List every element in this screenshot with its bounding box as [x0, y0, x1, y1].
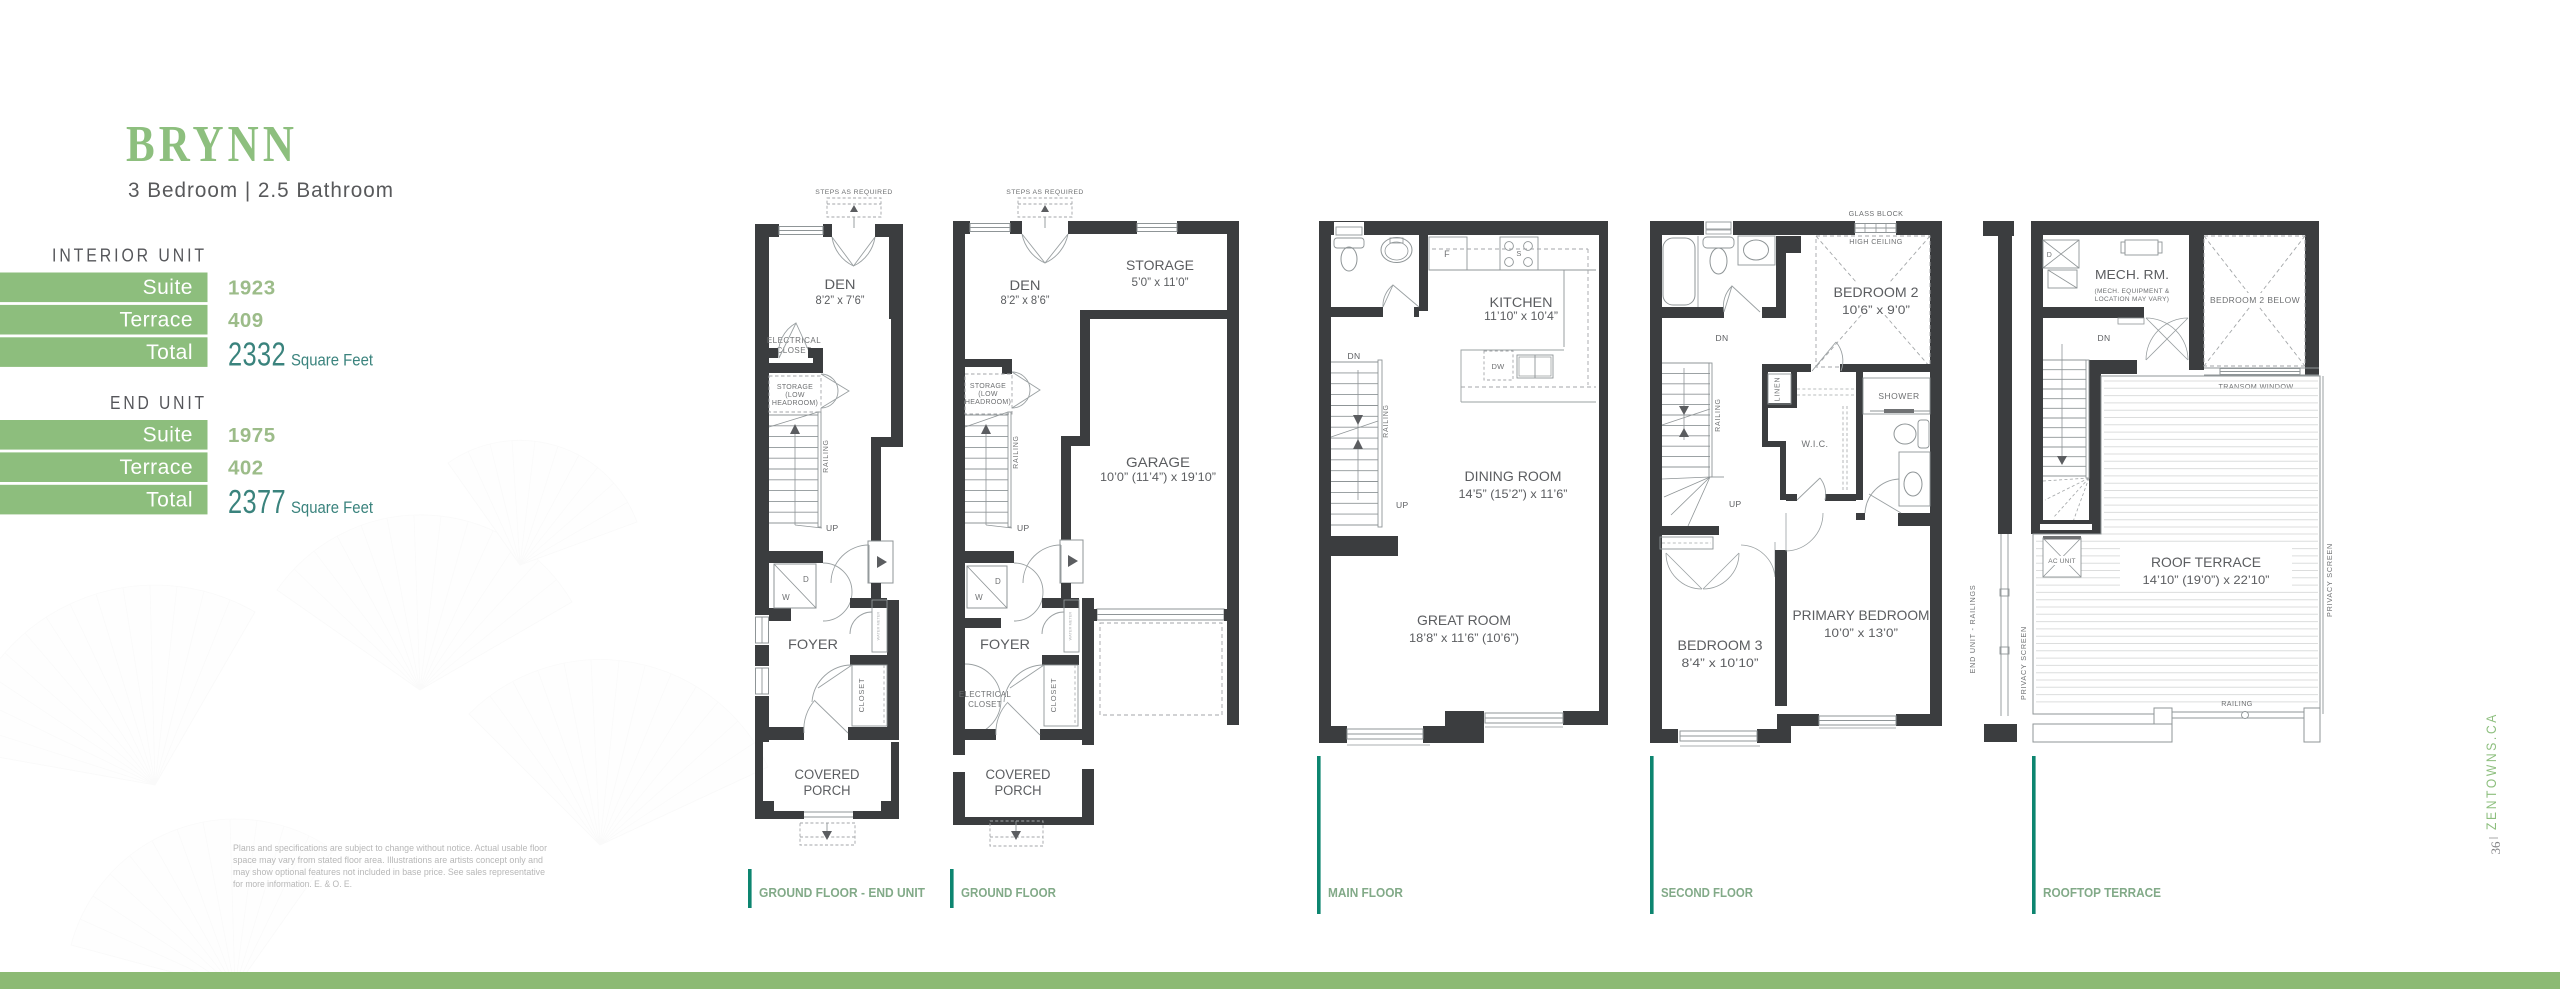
svg-text:END UNIT - RAILINGS: END UNIT - RAILINGS	[1968, 585, 1977, 674]
svg-text:STEPS AS REQUIRED: STEPS AS REQUIRED	[1006, 189, 1083, 196]
svg-text:DW: DW	[1491, 362, 1505, 371]
svg-text:BRYNN: BRYNN	[126, 116, 298, 173]
svg-text:GROUND FLOOR - END UNIT: GROUND FLOOR - END UNIT	[759, 886, 925, 900]
svg-text:RAILING: RAILING	[1013, 435, 1020, 469]
svg-text:DEN: DEN	[825, 277, 856, 292]
svg-text:CLOSET: CLOSET	[857, 678, 866, 713]
svg-text:F: F	[1444, 249, 1450, 259]
svg-text:DEN: DEN	[1010, 278, 1041, 293]
svg-text:Square Feet: Square Feet	[291, 499, 373, 517]
svg-text:RAILING: RAILING	[1383, 404, 1390, 438]
svg-text:8’2” x 7’6”: 8’2” x 7’6”	[816, 293, 865, 307]
svg-text:UP: UP	[1396, 500, 1409, 510]
svg-text:Terrace: Terrace	[119, 456, 193, 479]
svg-text:CLOSET: CLOSET	[1049, 678, 1058, 713]
svg-text:3 Bedroom | 2.5 Bathroom: 3 Bedroom | 2.5 Bathroom	[128, 179, 394, 202]
svg-text:LINEN: LINEN	[1775, 377, 1782, 402]
svg-text:WATER METER: WATER METER	[877, 611, 881, 640]
svg-text:D: D	[995, 577, 1001, 586]
svg-text:11’10” x 10’4”: 11’10” x 10’4”	[1484, 309, 1558, 323]
svg-text:for more information. E. & O.: for more information. E. & O. E.	[233, 879, 352, 889]
svg-text:TRANSOM WINDOW: TRANSOM WINDOW	[2218, 382, 2293, 391]
svg-text:may show optional features not: may show optional features not included …	[233, 867, 545, 877]
svg-text:DN: DN	[1347, 351, 1360, 361]
svg-text:DN: DN	[2097, 333, 2110, 343]
svg-text:402: 402	[228, 456, 264, 479]
svg-text:Terrace: Terrace	[119, 309, 193, 332]
svg-text:ELECTRICAL: ELECTRICAL	[767, 336, 821, 345]
svg-text:S: S	[1516, 249, 1521, 258]
svg-text:36: 36	[2488, 841, 2503, 855]
svg-text:MAIN FLOOR: MAIN FLOOR	[1328, 886, 1403, 900]
svg-text:8’2” x 8’6”: 8’2” x 8’6”	[1001, 293, 1050, 307]
svg-text:CLOSET: CLOSET	[776, 346, 811, 355]
svg-text:D: D	[803, 575, 809, 584]
svg-text:1923: 1923	[228, 277, 276, 300]
svg-text:14’10” (19’0”) x 22’10”: 14’10” (19’0”) x 22’10”	[2143, 573, 2270, 587]
svg-text:W: W	[782, 593, 790, 602]
svg-text:WATER METER: WATER METER	[1069, 611, 1073, 640]
svg-text:CLOSET: CLOSET	[968, 700, 1002, 709]
svg-text:DINING ROOM: DINING ROOM	[1465, 469, 1562, 484]
svg-text:HIGH CEILING: HIGH CEILING	[1849, 237, 1903, 246]
svg-text:STORAGE: STORAGE	[970, 383, 1006, 390]
svg-text:Plans and specifications are s: Plans and specifications are subject to …	[233, 843, 547, 853]
svg-text:D: D	[2047, 252, 2054, 259]
svg-text:(LOW: (LOW	[785, 392, 805, 399]
svg-text:UP: UP	[1729, 499, 1742, 509]
svg-text:BEDROOM 3: BEDROOM 3	[1678, 638, 1763, 653]
svg-text:(LOW: (LOW	[978, 391, 998, 398]
svg-text:GROUND FLOOR: GROUND FLOOR	[961, 886, 1056, 900]
svg-text:UP: UP	[826, 523, 839, 533]
svg-text:2332: 2332	[228, 337, 286, 374]
svg-text:INTERIOR UNIT: INTERIOR UNIT	[52, 245, 207, 266]
svg-text:GARAGE: GARAGE	[1126, 455, 1190, 470]
svg-text:KITCHEN: KITCHEN	[1490, 295, 1553, 310]
svg-text:END UNIT: END UNIT	[110, 392, 207, 413]
svg-text:HEADROOM): HEADROOM)	[772, 400, 818, 407]
svg-text:1975: 1975	[228, 424, 276, 447]
svg-text:UP: UP	[1017, 523, 1030, 533]
svg-text:14’5” (15’2”) x 11’6”: 14’5” (15’2”) x 11’6”	[1459, 487, 1568, 501]
svg-text:PRIVACY SCREEN: PRIVACY SCREEN	[2019, 626, 2028, 700]
svg-text:RAILING: RAILING	[823, 439, 830, 473]
svg-text:RAILING: RAILING	[1715, 398, 1722, 432]
svg-text:Total: Total	[146, 488, 193, 511]
svg-text:5’0” x 11’0”: 5’0” x 11’0”	[1132, 275, 1189, 289]
svg-text:8’4” x 10’10”: 8’4” x 10’10”	[1682, 656, 1759, 670]
svg-text:SHOWER: SHOWER	[1878, 391, 1919, 401]
svg-text:BEDROOM 2 BELOW: BEDROOM 2 BELOW	[2210, 295, 2300, 305]
svg-text:W: W	[975, 593, 983, 602]
svg-text:AC UNIT: AC UNIT	[2048, 558, 2075, 565]
svg-text:STEPS AS REQUIRED: STEPS AS REQUIRED	[815, 189, 892, 196]
svg-text:STORAGE: STORAGE	[1126, 258, 1194, 273]
svg-text:10’0” x 13’0”: 10’0” x 13’0”	[1824, 626, 1898, 640]
svg-text:PRIVACY SCREEN: PRIVACY SCREEN	[2325, 543, 2334, 617]
svg-text:10’0” (11’4”) x 19’10”: 10’0” (11’4”) x 19’10”	[1100, 470, 1216, 484]
svg-text:COVERED: COVERED	[795, 767, 860, 782]
svg-text:space may vary from stated flo: space may vary from stated floor area. I…	[233, 855, 543, 865]
svg-text:Total: Total	[146, 341, 193, 364]
svg-text:2377: 2377	[228, 484, 286, 521]
svg-text:GREAT ROOM: GREAT ROOM	[1417, 613, 1511, 628]
svg-text:PORCH: PORCH	[804, 783, 851, 798]
svg-text:LOCATION MAY VARY): LOCATION MAY VARY)	[2095, 296, 2170, 303]
svg-text:ZENTOWNS.CA: ZENTOWNS.CA	[2484, 712, 2499, 830]
svg-text:DN: DN	[1715, 333, 1728, 343]
svg-text:W.I.C.: W.I.C.	[1802, 439, 1829, 449]
svg-text:RAILING: RAILING	[2221, 699, 2253, 708]
svg-text:ROOFTOP TERRACE: ROOFTOP TERRACE	[2043, 886, 2161, 900]
svg-text:409: 409	[228, 309, 264, 332]
svg-text:(MECH. EQUIPMENT &: (MECH. EQUIPMENT &	[2095, 288, 2170, 295]
svg-text:FOYER: FOYER	[788, 637, 838, 652]
svg-text:Suite: Suite	[143, 424, 193, 447]
svg-text:HEADROOM): HEADROOM)	[965, 399, 1011, 406]
svg-text:COVERED: COVERED	[986, 767, 1051, 782]
svg-text:18’8” x 11’6” (10’6”): 18’8” x 11’6” (10’6”)	[1409, 631, 1519, 645]
svg-text:ROOF TERRACE: ROOF TERRACE	[2151, 555, 2261, 570]
svg-text:STORAGE: STORAGE	[777, 384, 813, 391]
svg-text:ELECTRICAL: ELECTRICAL	[959, 690, 1012, 699]
svg-text:Square Feet: Square Feet	[291, 352, 373, 370]
svg-text:PORCH: PORCH	[995, 783, 1042, 798]
svg-text:FOYER: FOYER	[980, 637, 1030, 652]
svg-text:GLASS BLOCK: GLASS BLOCK	[1849, 209, 1904, 218]
svg-text:PRIMARY BEDROOM: PRIMARY BEDROOM	[1793, 608, 1930, 623]
svg-text:MECH. RM.: MECH. RM.	[2095, 267, 2169, 282]
svg-text:SECOND FLOOR: SECOND FLOOR	[1661, 886, 1753, 900]
svg-text:BEDROOM 2: BEDROOM 2	[1834, 285, 1919, 300]
svg-text:10’6” x 9’0”: 10’6” x 9’0”	[1842, 303, 1910, 317]
svg-text:Suite: Suite	[143, 276, 193, 299]
